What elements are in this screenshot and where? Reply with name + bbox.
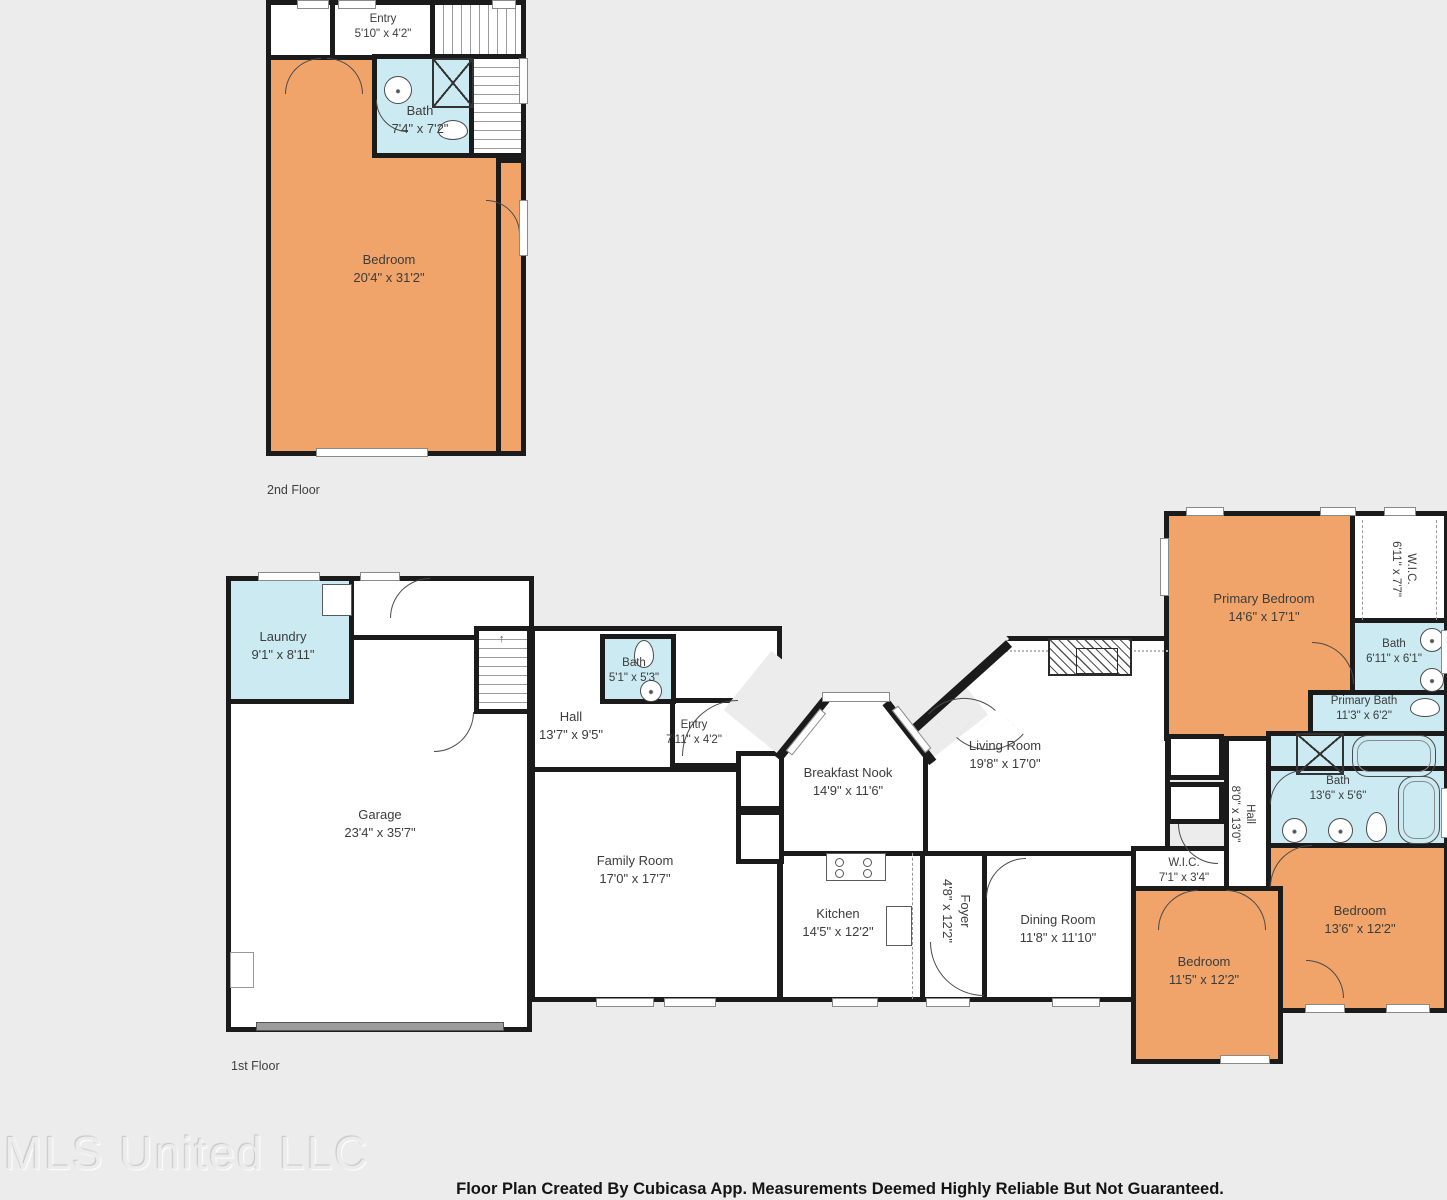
- room-name: Family Room: [597, 852, 674, 870]
- window: [832, 998, 878, 1007]
- counter-line: [912, 853, 913, 999]
- room-dims: 14'6" x 17'1": [1213, 608, 1314, 626]
- room-name: Entry: [666, 718, 722, 733]
- room-label-primary-bath: Primary Bath 11'3" x 6'2": [1331, 694, 1397, 724]
- room-dims: 23'4" x 35'7": [344, 824, 415, 842]
- room-name: Garage: [344, 806, 415, 824]
- room-label-bedroom-right: Bedroom 13'6" x 12'2": [1324, 902, 1395, 938]
- window: [316, 448, 428, 457]
- room-label-hall: Hall 13'7" x 9'5": [539, 708, 603, 744]
- room-name: Hall: [539, 708, 603, 726]
- room-name: Bath: [1310, 774, 1367, 789]
- room-dims: 13'6" x 12'2": [1324, 920, 1395, 938]
- floor-plan-page: Entry 5'10" x 4'2" Bath 7'4" x 7'2" Bedr…: [0, 0, 1447, 1200]
- room-label-foyer: Foyer 4'8" x 12'2": [938, 879, 974, 943]
- room-unlabeled-2f: [266, 0, 336, 60]
- sink-icon: [1328, 818, 1353, 843]
- closet-rail: [1362, 520, 1363, 620]
- window: [822, 692, 890, 702]
- room-label-dining-room: Dining Room 11'8" x 11'10": [1020, 911, 1097, 947]
- room-dims: 9'1" x 8'11": [251, 646, 314, 664]
- window: [596, 998, 654, 1007]
- room-dims: 17'0" x 17'7": [597, 870, 674, 888]
- window: [1305, 1004, 1345, 1013]
- room-name: Hall: [1242, 786, 1257, 843]
- bathtub-icon: [1398, 776, 1440, 844]
- room-name: Primary Bedroom: [1213, 590, 1314, 608]
- room-dims: 7'1" x 3'4": [1159, 871, 1209, 886]
- fireplace-inner: [1076, 648, 1118, 674]
- room-dims: 11'8" x 11'10": [1020, 929, 1097, 947]
- room-name: W.I.C.: [1403, 541, 1418, 597]
- sink-icon: [1282, 818, 1307, 843]
- window: [1441, 630, 1447, 674]
- window: [1220, 1055, 1270, 1064]
- closet: [736, 810, 784, 864]
- room-name: Bath: [609, 656, 659, 671]
- room-dims: 20'4" x 31'2": [353, 269, 424, 287]
- room-label-wic: W.I.C. 7'1" x 3'4": [1159, 856, 1209, 886]
- toilet-icon: [1366, 812, 1387, 842]
- room-dims: 14'5" x 12'2": [802, 923, 873, 941]
- room-label-bedroom-2f: Bedroom 20'4" x 31'2": [353, 251, 424, 287]
- first-floor-label: 1st Floor: [231, 1059, 280, 1073]
- stove-icon: [826, 853, 886, 881]
- window: [519, 200, 528, 256]
- room-dims: 4'8" x 12'2": [938, 879, 956, 943]
- second-floor-label: 2nd Floor: [267, 483, 320, 497]
- room-dims: 11'3" x 6'2": [1331, 709, 1397, 724]
- room-dims: 19'8" x 17'0": [969, 755, 1041, 773]
- closet-rail: [1436, 520, 1437, 620]
- shower-icon: [1296, 733, 1344, 775]
- shower-icon: [432, 58, 474, 108]
- room-name: W.I.C.: [1159, 856, 1209, 871]
- room-dims: 11'5" x 12'2": [1169, 971, 1239, 989]
- room-dims: 6'11" x 6'1": [1366, 652, 1422, 667]
- room-name: Primary Bath: [1331, 694, 1397, 709]
- room-label-family-room: Family Room 17'0" x 17'7": [597, 852, 674, 888]
- window: [1052, 998, 1100, 1007]
- stairs-up-arrow-icon: ↑: [499, 633, 505, 645]
- window: [1386, 1004, 1430, 1013]
- room-label-wic2: W.I.C. 6'11" x 7'7": [1388, 541, 1418, 597]
- room-dims: 8'0" x 13'0": [1227, 786, 1242, 843]
- window: [258, 572, 320, 581]
- room-name: Living Room: [969, 737, 1041, 755]
- room-name: Kitchen: [802, 905, 873, 923]
- room-dims: 5'1" x 5'3": [609, 671, 659, 686]
- disclaimer-text: Floor Plan Created By Cubicasa App. Meas…: [456, 1180, 1224, 1199]
- room-label-bedroom-left: Bedroom 11'5" x 12'2": [1169, 953, 1239, 989]
- room-name: Bedroom: [1169, 953, 1239, 971]
- window: [664, 998, 716, 1007]
- window: [1160, 538, 1169, 596]
- room-label-bath-2f: Bath 7'4" x 7'2": [392, 102, 449, 138]
- window: [297, 0, 329, 9]
- window: [492, 0, 516, 9]
- room-label-hall2: Hall 8'0" x 13'0": [1227, 786, 1257, 843]
- watermark: MLS United LLC: [4, 1126, 370, 1180]
- room-dims: 5'10" x 4'2": [355, 27, 412, 42]
- room-name: Breakfast Nook: [804, 764, 893, 782]
- room-name: Bedroom: [1324, 902, 1395, 920]
- room-label-entry-1f: Entry 7'11" x 4'2": [666, 718, 722, 748]
- window: [1384, 507, 1416, 516]
- closet: [1166, 782, 1224, 824]
- room-dims: 13'7" x 9'5": [539, 726, 603, 744]
- window: [338, 0, 376, 9]
- closet: [1166, 734, 1224, 780]
- closet: [736, 751, 784, 811]
- stairs-icon: [430, 0, 526, 60]
- room-name: Foyer: [956, 879, 974, 943]
- room-name: Laundry: [251, 628, 314, 646]
- room-dims: 7'4" x 7'2": [392, 120, 449, 138]
- room-dims: 13'6" x 5'6": [1310, 789, 1367, 804]
- toilet-icon: [1410, 698, 1440, 717]
- bathtub-icon: [1352, 735, 1436, 777]
- stairs-icon: [468, 54, 526, 158]
- room-label-bath3: Bath 13'6" x 5'6": [1310, 774, 1367, 804]
- fireplace-icon: [1048, 638, 1132, 676]
- room-name: Bath: [392, 102, 449, 120]
- room-label-kitchen: Kitchen 14'5" x 12'2": [802, 905, 873, 941]
- room-name: Bath: [1366, 637, 1422, 652]
- window: [1441, 788, 1447, 838]
- room-label-entry-2f: Entry 5'10" x 4'2": [355, 12, 412, 42]
- utility-box: [230, 952, 254, 988]
- room-label-living-room: Living Room 19'8" x 17'0": [969, 737, 1041, 773]
- window: [360, 572, 400, 581]
- room-label-garage: Garage 23'4" x 35'7": [344, 806, 415, 842]
- garage-door: [256, 1022, 504, 1031]
- room-label-laundry: Laundry 9'1" x 8'11": [251, 628, 314, 664]
- window: [1186, 507, 1224, 516]
- kitchen-sink-icon: [886, 906, 912, 946]
- room-label-bath2: Bath 6'11" x 6'1": [1366, 637, 1422, 667]
- room-dims: 7'11" x 4'2": [666, 733, 722, 748]
- room-label-breakfast-nook: Breakfast Nook 14'9" x 11'6": [804, 764, 893, 800]
- room-label-primary-bedroom: Primary Bedroom 14'6" x 17'1": [1213, 590, 1314, 626]
- window: [1320, 507, 1356, 516]
- room-name: Entry: [355, 12, 412, 27]
- room-dims: 14'9" x 11'6": [804, 782, 893, 800]
- room-label-bath-hall: Bath 5'1" x 5'3": [609, 656, 659, 686]
- room-name: Bedroom: [353, 251, 424, 269]
- window: [926, 998, 970, 1007]
- window: [519, 58, 528, 104]
- washer-icon: [322, 584, 352, 616]
- room-name: Dining Room: [1020, 911, 1097, 929]
- room-dims: 6'11" x 7'7": [1388, 541, 1403, 597]
